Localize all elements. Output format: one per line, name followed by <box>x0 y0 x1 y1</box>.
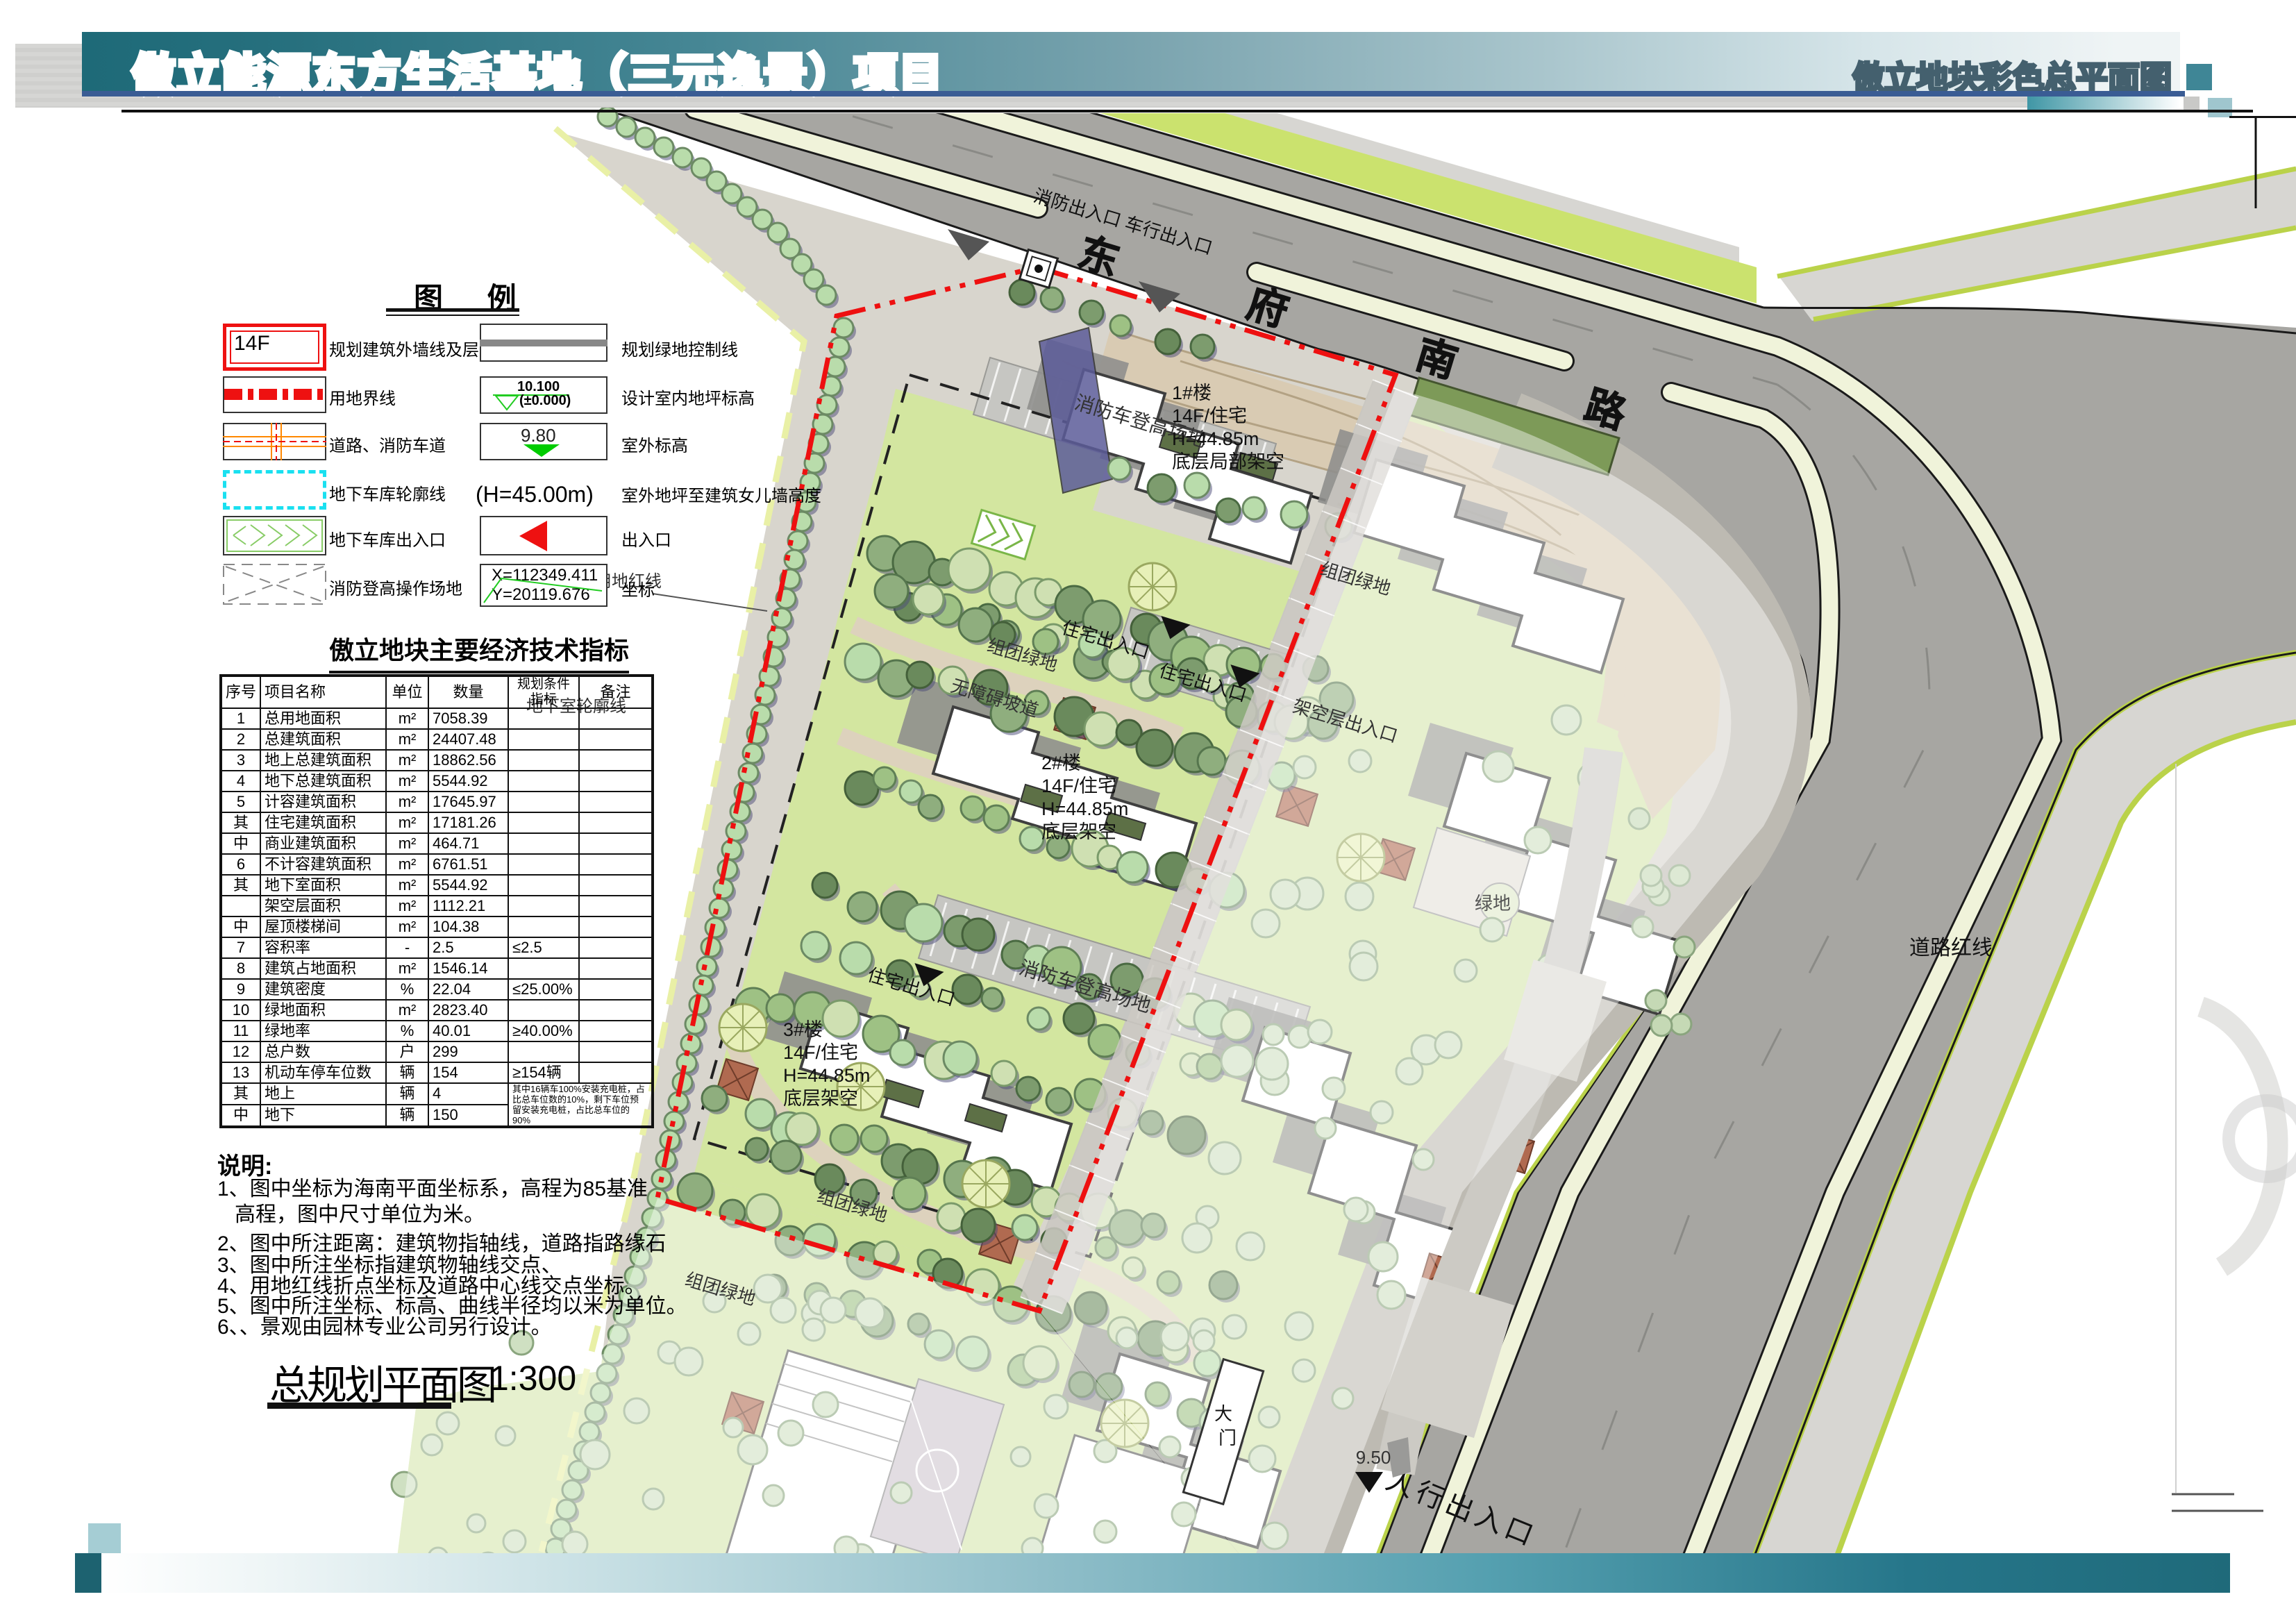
svg-text:大: 大 <box>1214 1403 1232 1424</box>
svg-text:14F/住宅: 14F/住宅 <box>1041 776 1116 796</box>
svg-text:底层局部架空: 底层局部架空 <box>1172 451 1284 472</box>
svg-text:H=44.85m: H=44.85m <box>1041 798 1128 819</box>
svg-text:14F/住宅: 14F/住宅 <box>1172 405 1247 426</box>
svg-text:道路红线: 道路红线 <box>1909 937 1993 960</box>
svg-text:绿地: 绿地 <box>1475 893 1511 914</box>
svg-text:9.50: 9.50 <box>1356 1447 1391 1468</box>
svg-text:门: 门 <box>1218 1428 1237 1448</box>
svg-text:1#楼: 1#楼 <box>1172 383 1212 403</box>
svg-text:H=44.85m: H=44.85m <box>783 1065 870 1086</box>
svg-text:底层架空: 底层架空 <box>783 1088 858 1109</box>
svg-text:3#楼: 3#楼 <box>783 1019 823 1040</box>
svg-text:2#楼: 2#楼 <box>1041 753 1081 773</box>
svg-text:H=44.85m: H=44.85m <box>1172 428 1259 449</box>
svg-text:底层架空: 底层架空 <box>1041 821 1116 842</box>
svg-text:14F/住宅: 14F/住宅 <box>783 1042 858 1063</box>
